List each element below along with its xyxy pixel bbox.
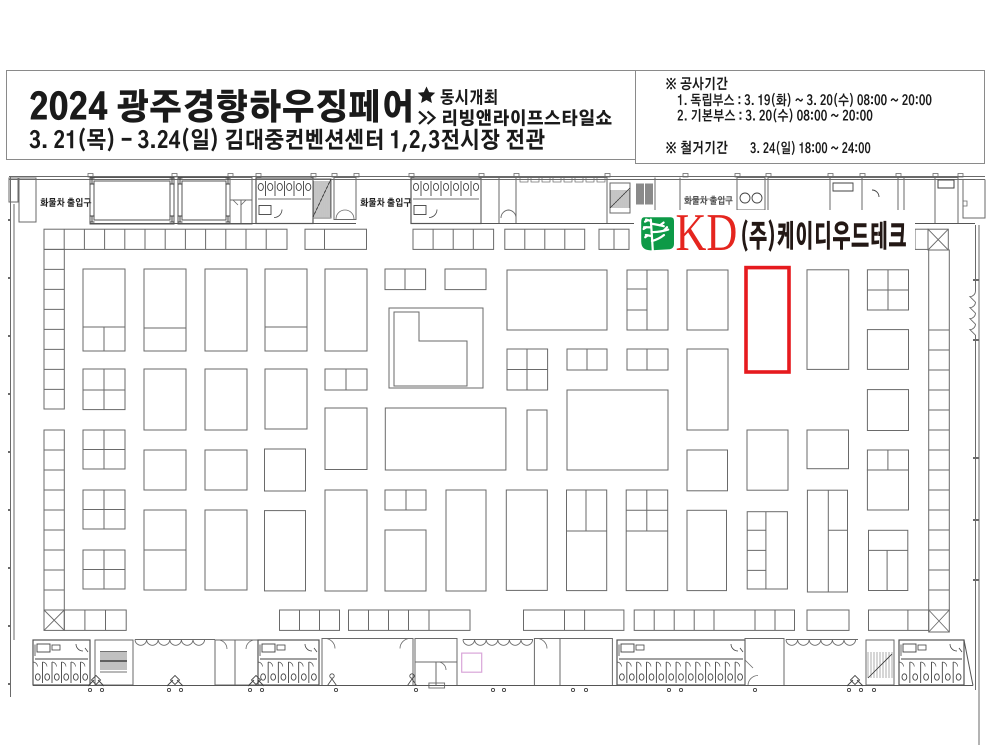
svg-text:KD: KD (676, 204, 738, 262)
